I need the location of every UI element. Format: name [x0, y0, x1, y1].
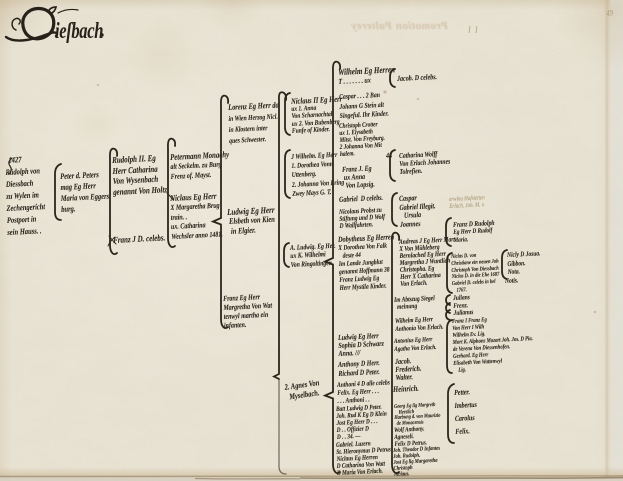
- svg-text:ieſbach: ieſbach: [55, 18, 103, 43]
